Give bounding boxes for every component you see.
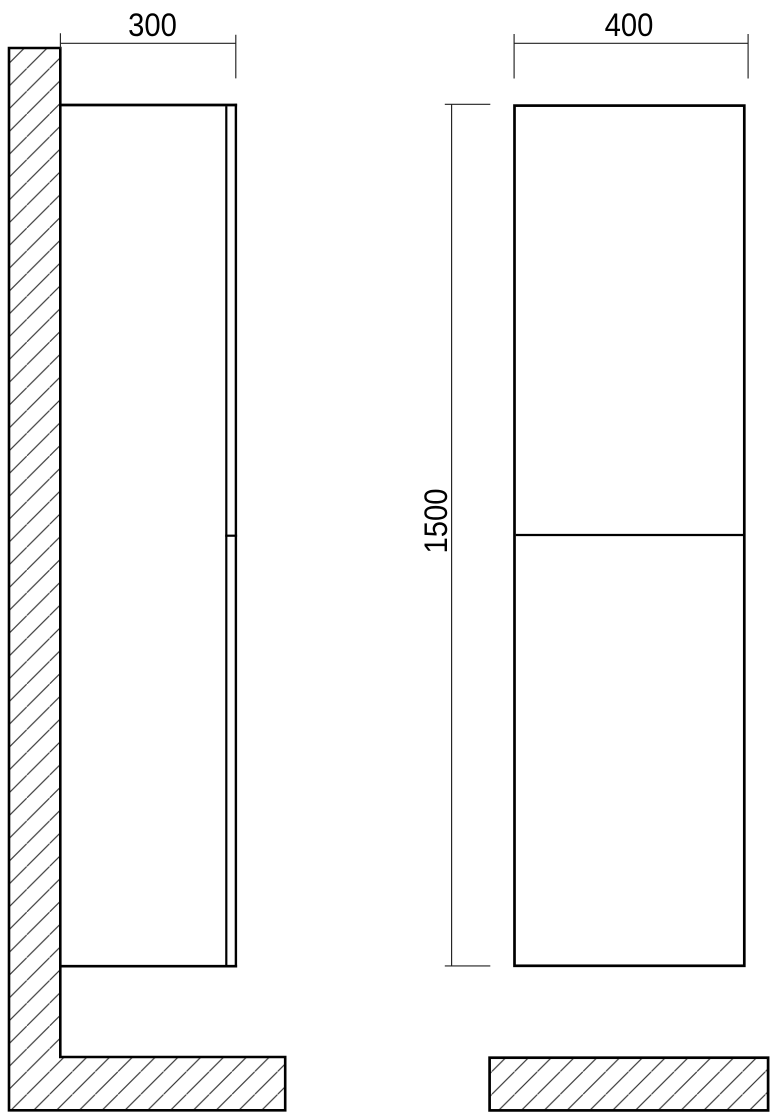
svg-text:1500: 1500 — [417, 489, 454, 554]
svg-text:300: 300 — [128, 7, 177, 44]
svg-text:400: 400 — [605, 7, 654, 44]
